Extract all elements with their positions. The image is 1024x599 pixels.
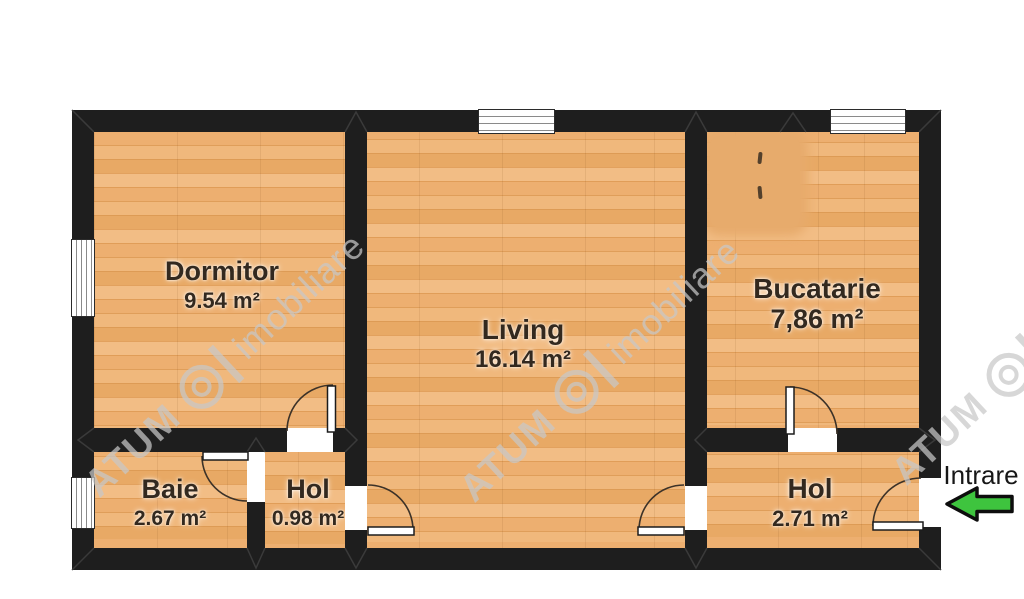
- atum-logo-bar: [1015, 333, 1024, 371]
- window-dormitor: [71, 239, 95, 317]
- room-area: 16.14 m²: [475, 345, 571, 375]
- window-living: [478, 109, 555, 134]
- room-label-dormitor: Dormitor 9.54 m²: [165, 256, 279, 316]
- kitchen-smudge: [710, 136, 800, 228]
- door-gap-bucatarie: [788, 428, 837, 452]
- room-label-bucatarie: Bucatarie 7,86 m²: [753, 274, 881, 334]
- atum-logo-inner: [994, 361, 1022, 389]
- room-area: 9.54 m²: [165, 286, 279, 316]
- room-name: Hol: [272, 474, 344, 504]
- room-area: 0.98 m²: [272, 504, 344, 534]
- entrance-label: Intrare: [943, 460, 1018, 491]
- room-label-living: Living 16.14 m²: [475, 315, 571, 375]
- room-name: Hol: [772, 474, 848, 504]
- door-gap-entrance: [919, 478, 942, 527]
- atum-logo-icon: [977, 344, 1024, 406]
- room-label-hol-entrance: Hol 2.71 m²: [772, 474, 848, 534]
- wall-baie-hol: [247, 502, 265, 548]
- wall-exterior-bottom: [72, 548, 941, 570]
- floorplan-image: Dormitor 9.54 m² Living 16.14 m² Bucatar…: [0, 0, 1024, 599]
- door-gap-baie: [247, 452, 265, 502]
- room-label-baie: Baie 2.67 m²: [134, 474, 206, 534]
- door-gap-living-left: [345, 486, 367, 530]
- room-name: Bucatarie: [753, 274, 881, 304]
- room-label-hol-small: Hol 0.98 m²: [272, 474, 344, 534]
- room-name: Dormitor: [165, 256, 279, 286]
- door-gap-living-right: [685, 486, 707, 530]
- room-name: Living: [475, 315, 571, 345]
- entrance-arrow-icon: [947, 488, 1012, 520]
- window-baie: [71, 477, 95, 529]
- room-area: 7,86 m²: [753, 304, 881, 334]
- door-gap-dormitor: [287, 428, 333, 452]
- room-area: 2.67 m²: [134, 504, 206, 534]
- room-area: 2.71 m²: [772, 504, 848, 534]
- room-name: Baie: [134, 474, 206, 504]
- window-bucatarie: [830, 109, 906, 134]
